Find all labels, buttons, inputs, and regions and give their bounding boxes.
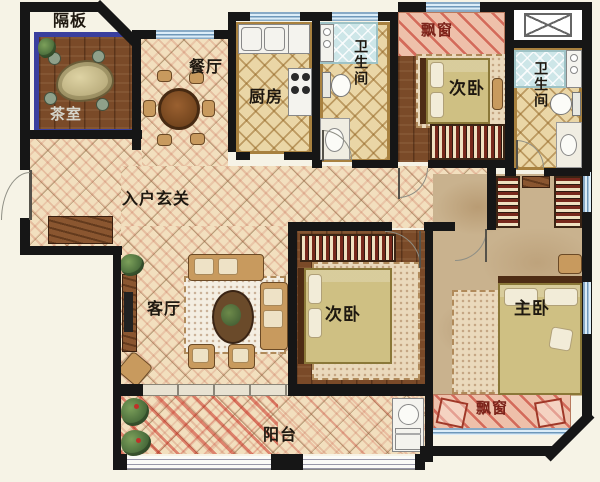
wall-segment [398, 2, 426, 12]
master-rug [452, 290, 504, 394]
sofa-cushion [218, 258, 238, 275]
wall-segment [487, 168, 496, 230]
label-living-room: 客厅 [140, 300, 188, 318]
bay-cushion [534, 398, 566, 428]
stove-burner [291, 73, 299, 81]
chair-cushion [192, 348, 209, 363]
plant-flower [134, 404, 139, 409]
bay-cushion [436, 397, 469, 428]
wall-segment [132, 38, 141, 150]
label-entrance-hall: 入户玄关 [112, 190, 200, 208]
bedroom-top-bench [492, 78, 503, 110]
tea-stool [44, 92, 57, 105]
label-partition: 隔板 [40, 12, 100, 30]
wall-segment [228, 12, 236, 152]
shoe-cabinet [48, 216, 113, 244]
window [332, 12, 378, 21]
tea-stool [96, 98, 109, 111]
master-nightstand [558, 254, 582, 274]
wall-segment [390, 12, 398, 168]
dining-chair [157, 134, 172, 146]
master-wardrobe-right [554, 176, 582, 228]
wall-segment [288, 384, 425, 396]
bay-window-bottom-glass [433, 428, 571, 435]
window [583, 172, 591, 212]
sliding-glass-door [143, 384, 288, 396]
wall-segment [428, 160, 505, 168]
label-bay-window-bottom: 飘窗 [468, 400, 516, 417]
label-kitchen: 厨房 [242, 88, 290, 106]
bedroom-top-wardrobe [430, 124, 505, 160]
wall-segment [433, 222, 455, 231]
bedroom-middle-door-leaf[interactable] [419, 231, 421, 268]
window [250, 12, 300, 21]
wall-segment [236, 152, 250, 160]
wall-segment [288, 222, 392, 231]
sofa-cushion [263, 310, 283, 328]
label-master-bedroom: 主卧 [506, 300, 558, 320]
balcony-post [113, 454, 127, 470]
label-bathroom-top: 卫生间 [352, 30, 368, 96]
cabinet-knob [323, 40, 331, 48]
label-tea-room: 茶室 [44, 106, 88, 123]
wall-segment [132, 30, 156, 39]
pillow [308, 274, 322, 304]
kitchen-counter [288, 24, 310, 54]
wall-segment [352, 160, 398, 168]
kitchen-sink [241, 27, 262, 51]
cabinet-knob [323, 28, 331, 36]
sofa-cushion [194, 258, 214, 275]
label-bathroom-right: 卫生间 [532, 52, 548, 118]
bathroom-top-door-leaf[interactable] [322, 130, 324, 161]
label-bedroom-top: 次卧 [442, 80, 492, 100]
wall-segment [425, 226, 433, 462]
dining-chair [143, 100, 156, 117]
bedroom-top-door-leaf[interactable] [398, 168, 400, 199]
plant-flower [136, 438, 141, 443]
wall-segment [420, 446, 554, 456]
stove-burner [302, 73, 310, 81]
label-bedroom-middle: 次卧 [318, 306, 368, 326]
kitchen-sink [264, 27, 285, 51]
wall-segment [312, 12, 320, 160]
vent-shaft-icon [524, 13, 572, 37]
master-dresser [522, 176, 550, 188]
wall-segment [288, 222, 297, 388]
stove-burner [302, 86, 310, 94]
washing-machine-panel [395, 433, 421, 435]
toilet [550, 93, 572, 115]
master-door-leaf[interactable] [485, 229, 487, 262]
tv [124, 292, 133, 332]
window [583, 282, 591, 334]
stove-burner [291, 86, 299, 94]
coffee-table-plant [221, 304, 241, 326]
wall-segment [113, 246, 121, 458]
wall-segment [505, 168, 516, 176]
label-bay-window-top: 飘窗 [414, 22, 460, 39]
dining-chair [190, 133, 205, 145]
dining-chair [157, 70, 172, 82]
wall-segment [121, 384, 143, 396]
wall-segment [20, 246, 122, 255]
dining-table [158, 88, 200, 130]
wall-segment [544, 168, 590, 176]
window [156, 30, 214, 39]
bed-headboard [498, 276, 582, 283]
wall-segment [320, 12, 332, 21]
wall-segment [284, 152, 312, 160]
cabinet-knob [570, 54, 578, 62]
bathroom-right-door-leaf[interactable] [516, 140, 518, 169]
floor-plan: 隔板 茶室 餐厅 厨房 卫生间 卫生间 飘窗 次卧 入户玄关 客厅 次卧 主卧 … [0, 0, 600, 482]
balcony-post [415, 454, 425, 470]
balcony-glass-rail [303, 456, 415, 470]
wall-segment [236, 12, 250, 21]
wall-segment [312, 160, 322, 168]
label-balcony: 阳台 [256, 426, 304, 444]
sofa-cushion [263, 288, 283, 306]
balcony-sink [398, 404, 419, 425]
tea-stool [92, 50, 105, 63]
entry-door-swing [1, 172, 30, 220]
toilet-tank [322, 72, 331, 98]
toilet [331, 74, 351, 97]
toilet-tank [572, 92, 581, 116]
wall-segment [514, 40, 582, 48]
master-wardrobe-left [496, 176, 520, 228]
balcony-glass-rail [127, 456, 271, 470]
bed-throw [548, 326, 573, 351]
washing-machine [395, 428, 421, 450]
bedroom-middle-wardrobe [300, 234, 396, 262]
dining-chair [202, 100, 215, 117]
wall-segment [505, 2, 514, 176]
label-dining-room: 餐厅 [182, 58, 230, 76]
cabinet-knob [570, 66, 578, 74]
wall-segment [20, 130, 142, 139]
washbasin [560, 134, 577, 156]
window [426, 2, 480, 12]
balcony-post [271, 454, 303, 470]
chair-cushion [232, 348, 249, 363]
